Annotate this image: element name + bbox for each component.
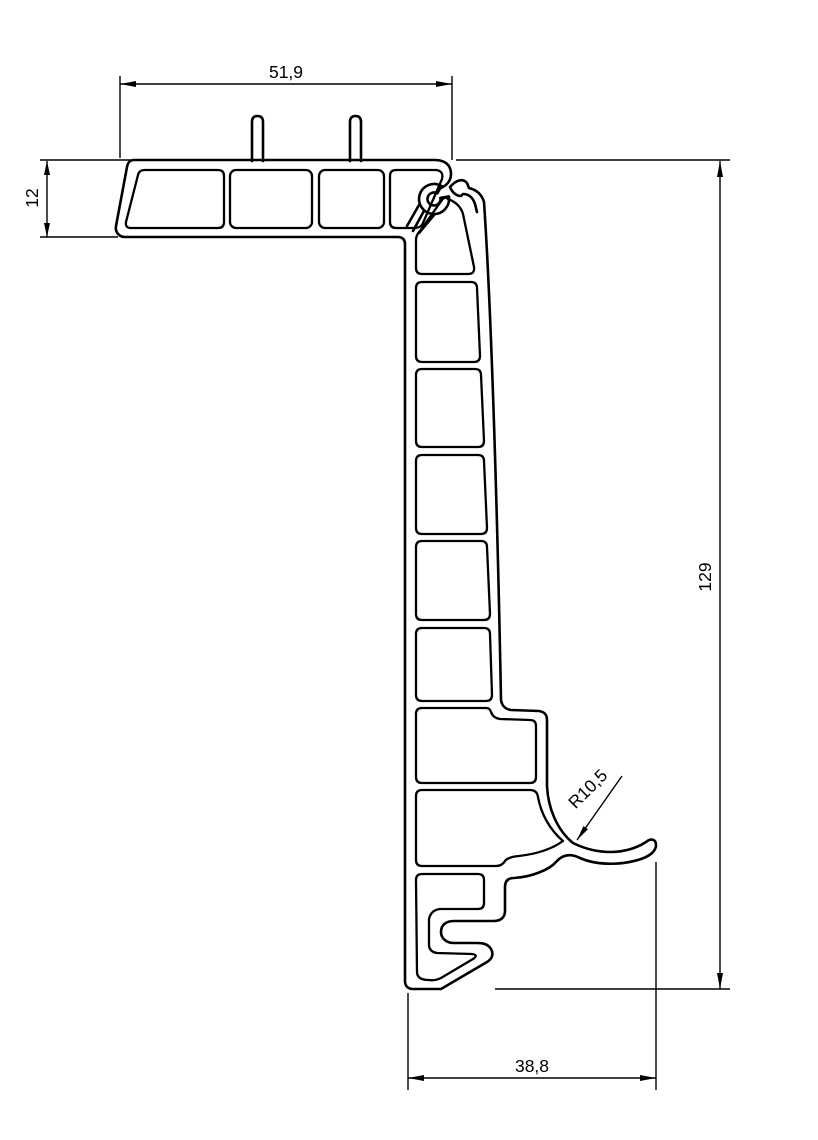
arrow-bottom-left [408,1075,424,1081]
bar-cell-3 [319,170,384,228]
dim-bottom-label: 38,8 [515,1056,549,1076]
dim-top-label: 51,9 [269,62,303,82]
dim-radius-label: R10,5 [564,765,611,812]
bar-cell-1 [126,170,224,228]
bar-cell-2 [230,170,312,228]
drawing-canvas: 51,9 12 129 38,8 R10,5 [0,0,818,1140]
body-cell-3 [416,369,484,447]
profile-drawing-svg: 51,9 12 129 38,8 R10,5 [0,0,818,1140]
arrow-radius [577,826,588,840]
arrow-left-up [44,161,50,175]
dimension-arrows [44,81,723,1081]
body-cell-9-channel [416,874,484,980]
arrow-top-right [436,81,452,87]
profile-top-rib-right [350,116,361,161]
profile-top-rib-left [252,116,263,161]
arrow-right-down [717,973,723,989]
profile-outline [116,116,656,989]
body-cell-2 [416,282,480,362]
arrow-right-up [717,161,723,177]
dim-right-label: 129 [695,562,715,591]
body-cell-5 [416,541,490,620]
body-cell-6 [416,628,492,701]
dim-left-label: 12 [22,188,42,207]
arrow-left-down [44,223,50,237]
arrow-top-left [120,81,136,87]
profile-outer-contour [116,160,656,989]
body-cell-7-step [416,708,536,783]
dimension-labels: 51,9 12 129 38,8 R10,5 [22,62,715,1076]
body-cell-8-radius [416,790,563,866]
arrow-bottom-right [640,1075,656,1081]
body-cell-4 [416,455,487,534]
bar-cell-4 [390,170,442,228]
